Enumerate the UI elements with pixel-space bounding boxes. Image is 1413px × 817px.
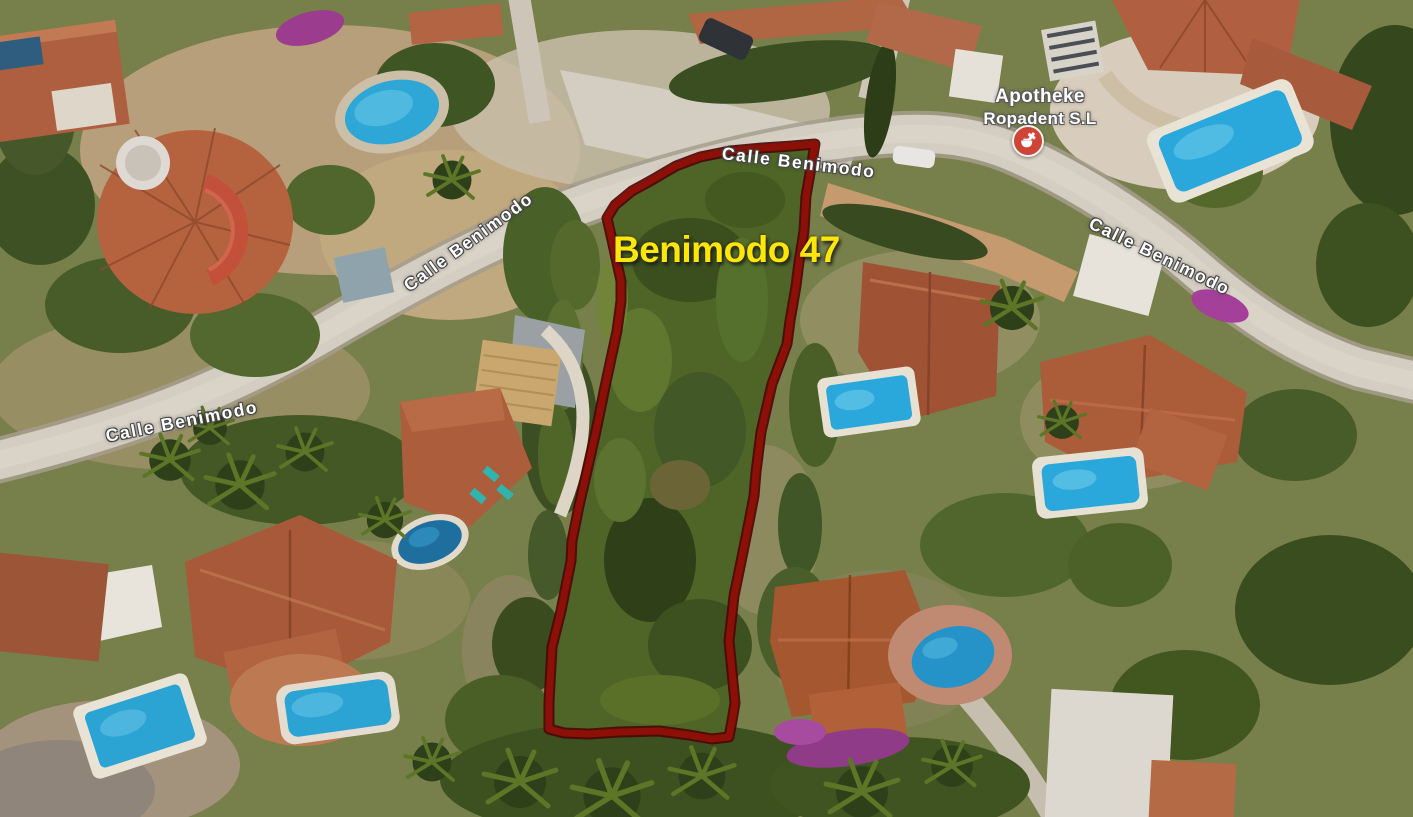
- poi-title[interactable]: Apotheke: [964, 86, 1116, 108]
- pharmacy-icon[interactable]: [1012, 125, 1044, 157]
- satellite-map[interactable]: Calle Benimodo Calle Benimodo Calle Beni…: [0, 0, 1413, 817]
- bougainvillea: [774, 719, 826, 745]
- plot-label: Benimodo 47: [613, 229, 840, 271]
- satellite-imagery[interactable]: [0, 0, 1413, 817]
- poi-apotheke-label[interactable]: Apotheke Ropadent S.L: [964, 86, 1116, 129]
- carport: [1041, 21, 1104, 82]
- house-topleft: [0, 20, 130, 143]
- poi-subtitle[interactable]: Ropadent S.L: [964, 109, 1116, 129]
